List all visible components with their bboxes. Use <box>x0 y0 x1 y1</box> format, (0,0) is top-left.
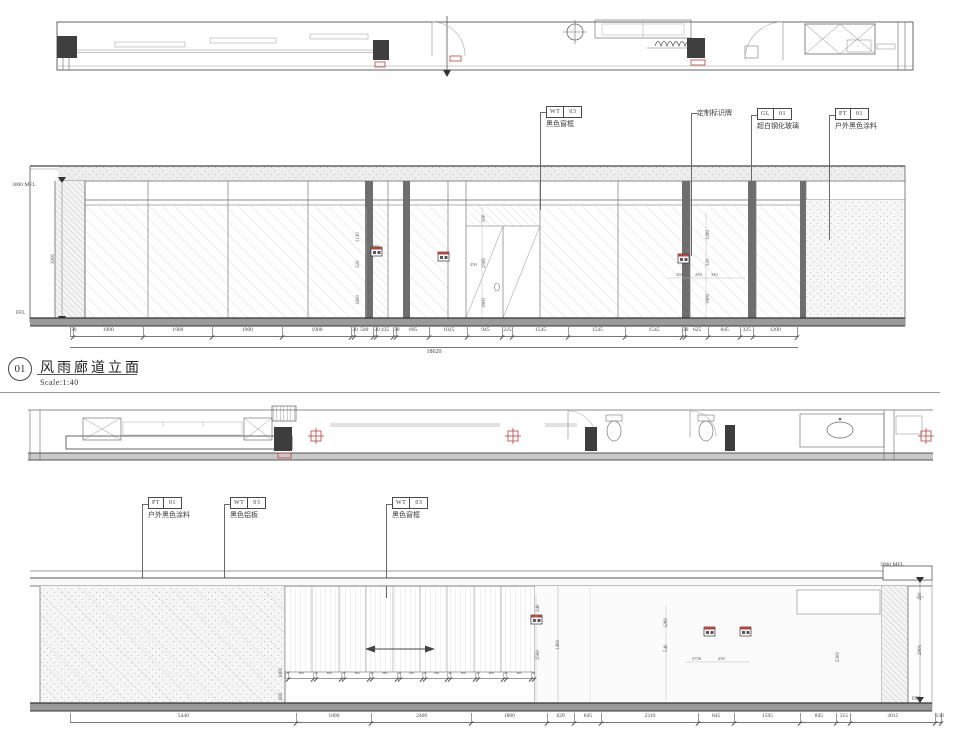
sheet-divider <box>0 392 940 393</box>
elevation-2-drawing <box>25 555 940 713</box>
beam <box>883 566 932 580</box>
dimension-row: 5440180024001800629645231084515958453152… <box>70 713 942 723</box>
counter <box>66 436 292 449</box>
small-dimension: 2750 <box>692 656 701 661</box>
material-desc: 户外黑色涂料 <box>835 121 877 131</box>
dimension-value: 1025 <box>430 327 468 336</box>
dimension-value: 1900 <box>283 327 353 336</box>
tag-code: WT <box>547 107 564 117</box>
small-dimension: 250 <box>718 656 725 661</box>
vertical-dimension: 1600 <box>356 295 361 305</box>
dimension-value: 320 <box>426 671 448 678</box>
partition-wall <box>585 427 597 451</box>
dimension-value: 2015 <box>851 713 935 722</box>
louver-dimension-row: 3036020360203602036020320203202036020360… <box>285 671 535 679</box>
tag-code: WT <box>393 498 410 508</box>
material-callout: 定制标识牌 <box>697 107 732 118</box>
elev2-left-stucco-wall <box>40 586 285 703</box>
dimension-value: 629 <box>548 713 575 722</box>
niche <box>797 590 880 614</box>
material-callout: PT 01 户外黑色涂料 <box>835 108 877 131</box>
material-desc: 定制标识牌 <box>697 108 732 118</box>
elev1-floor <box>30 318 905 326</box>
vertical-dimension: 2800 <box>918 645 923 655</box>
material-tag: PT 01 <box>835 108 869 120</box>
elevation-1-drawing <box>25 95 935 335</box>
dimension-value: 845 <box>709 327 741 336</box>
vertical-dimension: 240 <box>536 605 541 613</box>
small-dimension: 250 <box>470 262 477 267</box>
tag-number: 01 <box>164 498 181 508</box>
title-underline <box>37 374 137 375</box>
level-marker-top: 3000 MFL <box>880 562 904 568</box>
material-desc: 黑色铝板 <box>230 510 258 520</box>
coil-element <box>655 42 691 47</box>
vertical-dimension: 1600 <box>706 294 711 304</box>
material-desc: 黑色窗框 <box>546 119 574 129</box>
vertical-dimension: 1000 <box>279 668 284 678</box>
toilet <box>607 421 621 441</box>
dimension-value: 360 <box>451 671 476 678</box>
plan-strip-top <box>55 10 915 82</box>
fixture-red <box>691 60 705 65</box>
level-marker-bottom: FFL <box>912 696 921 702</box>
dimension-value: 645 <box>575 713 603 722</box>
vertical-dimension: 2300 <box>836 652 841 662</box>
vertical-dimension: 200 <box>918 593 923 601</box>
title-block: 01 风雨廊道立面 Scale:1:40 <box>8 357 142 387</box>
column <box>57 36 77 58</box>
vertical-dimension: 1280 <box>664 618 669 628</box>
level-marker-bottom: FFL <box>16 310 25 316</box>
dimension-value: 895 <box>397 327 430 336</box>
dimension-value: 2310 <box>602 713 698 722</box>
material-tag: WT 03 <box>546 106 582 118</box>
vertical-dimension: 1600 <box>482 298 487 308</box>
dimension-value: 360 <box>289 671 314 678</box>
elev2-right-wall <box>535 586 882 703</box>
tag-number: 01 <box>774 109 791 119</box>
material-tag: PT 01 <box>148 497 182 509</box>
material-callout: WT 03 黑色铝板 <box>230 497 266 520</box>
elev1-left-pier <box>55 181 85 322</box>
dimension-value: 1800 <box>297 713 372 722</box>
dimension-value: 500 <box>355 327 374 336</box>
elev2-right-pier <box>882 571 932 711</box>
dimension-value: 2400 <box>372 713 472 722</box>
plan-top-walls <box>57 16 913 77</box>
total-dimension-label: 18620 <box>424 349 445 355</box>
vertical-dimension: 600 <box>279 693 284 701</box>
dimension-value: 1900 <box>74 327 144 336</box>
column <box>687 38 705 58</box>
door-swing-arc <box>432 22 465 56</box>
vertical-dimension: 1280 <box>706 230 711 240</box>
tag-number: 03 <box>564 107 581 117</box>
material-callout: WT 03 黑色窗框 <box>546 106 582 129</box>
dimension-value: 30 <box>532 671 535 678</box>
column <box>274 427 292 451</box>
dimension-value: 1200 <box>754 327 798 336</box>
material-callout: WT 03 黑色窗框 <box>392 497 428 520</box>
dimension-value: 435 <box>377 327 394 336</box>
small-dimension: 150 <box>372 244 379 249</box>
grille <box>272 406 296 421</box>
material-tag: GL 01 <box>757 108 792 120</box>
plan-bottom-walls <box>28 406 934 460</box>
material-tag: WT 03 <box>230 497 266 509</box>
millwork-xbox <box>805 24 875 54</box>
dimension-value: 360 <box>345 671 370 678</box>
toilet-tank <box>698 415 714 421</box>
socket-box <box>678 254 689 263</box>
elev2-slat-wall <box>285 586 535 703</box>
tag-code: PT <box>836 109 851 119</box>
socket-box <box>531 615 542 624</box>
plan-strip-bottom <box>28 403 938 465</box>
dimension-value: 360 <box>317 671 342 678</box>
dimension-value: 360 <box>479 671 504 678</box>
socket-box <box>704 627 715 636</box>
drawing-scale: Scale:1:40 <box>40 378 142 387</box>
faucet <box>839 418 842 421</box>
dimension-value: 325 <box>741 327 754 336</box>
elev2-floor <box>30 703 932 711</box>
socket-box <box>740 627 751 636</box>
elev2-ceiling <box>30 566 932 586</box>
leader-line <box>829 115 830 240</box>
dimension-value: 945 <box>468 327 503 336</box>
material-desc: 户外黑色涂料 <box>148 510 190 520</box>
dimension-value: 1595 <box>735 713 802 722</box>
dimension-value: 845 <box>801 713 837 722</box>
dimension-row: 3019001900190019003050030435308951025945… <box>70 327 798 337</box>
dimension-value: 1800 <box>472 713 547 722</box>
dimension-value: 360 <box>373 671 398 678</box>
elev1-stucco-wall <box>806 166 905 326</box>
small-dimension: 250 <box>695 272 702 277</box>
dimension-value: 360 <box>507 671 532 678</box>
elev1-glass-wall <box>85 181 905 318</box>
dimension-value: 130 <box>936 713 942 722</box>
tag-number: 03 <box>248 498 265 508</box>
vertical-dimension: 2560 <box>536 650 541 660</box>
leader-line <box>540 112 541 210</box>
toilet-tank <box>606 415 622 421</box>
sink <box>827 422 853 438</box>
drawing-number: 01 <box>8 357 32 381</box>
dimension-value: 5440 <box>70 713 297 722</box>
tag-number: 01 <box>851 109 868 119</box>
dimension-value: 845 <box>699 713 735 722</box>
dimension-value: 315 <box>837 713 851 722</box>
level-marker-top: 3000 MFL <box>12 182 36 188</box>
door-handle <box>495 283 500 291</box>
small-dimension: 350 <box>676 272 683 277</box>
small-dimension: 345 <box>711 272 718 277</box>
vertical-dimension: 320 <box>356 261 361 269</box>
partition-wall <box>725 425 735 451</box>
vertical-dimension: 3000 <box>51 254 56 264</box>
tag-code: PT <box>149 498 164 508</box>
vertical-dimension: 2560 <box>482 258 487 268</box>
leader-line <box>751 115 752 250</box>
fixture-red <box>450 56 461 61</box>
dimension-total-row: 18620 <box>70 347 798 348</box>
vanity-counter <box>800 414 884 447</box>
material-tag: WT 03 <box>392 497 428 509</box>
door-glazing <box>503 226 540 318</box>
dimension-value: 1545 <box>626 327 683 336</box>
dimension-value: 1900 <box>213 327 283 336</box>
material-callout: PT 01 户外黑色涂料 <box>148 497 190 520</box>
dimension-value: 320 <box>401 671 423 678</box>
tag-number: 03 <box>410 498 427 508</box>
dimension-value: 625 <box>686 327 710 336</box>
dimension-value: 225 <box>503 327 512 336</box>
socket-box <box>438 252 449 261</box>
column <box>373 40 389 60</box>
toilet <box>699 421 713 441</box>
vertical-dimension: 500 <box>482 215 487 223</box>
dimension-value: 1545 <box>513 327 570 336</box>
dimension-value: 1900 <box>144 327 214 336</box>
leader-line <box>691 113 692 256</box>
vertical-dimension: 540 <box>664 645 669 653</box>
dimension-value: 1545 <box>569 327 626 336</box>
vertical-dimension: 1400 <box>556 640 561 650</box>
material-desc: 超白钢化玻璃 <box>757 121 799 131</box>
tag-code: WT <box>231 498 248 508</box>
tag-code: GL <box>758 109 774 119</box>
material-callout: GL 01 超白钢化玻璃 <box>757 108 799 131</box>
cad-sheet: WT 03 黑色窗框 定制标识牌 GL 01 超白钢化玻璃 PT 01 户外黑色… <box>0 0 960 743</box>
vertical-dimension: 320 <box>706 259 711 267</box>
material-desc: 黑色窗框 <box>392 510 420 520</box>
vertical-dimension: 1130 <box>356 232 361 242</box>
